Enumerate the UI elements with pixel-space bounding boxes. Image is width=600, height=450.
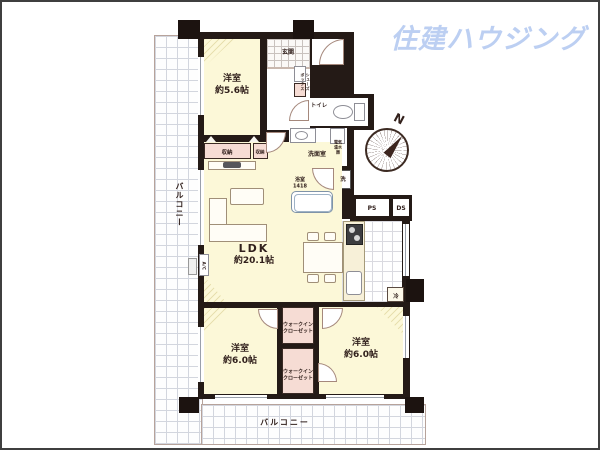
- bedroom2-label: 洋室 約6.0帖: [205, 344, 275, 367]
- kitchen-sink: [346, 271, 362, 295]
- water-heater-label: 電気温水器: [324, 140, 352, 156]
- balcony-left-label: バルコニー: [172, 174, 184, 234]
- dining-chair: [307, 232, 319, 241]
- closet-door-mark: [206, 136, 216, 142]
- floorplan-image: 洋室 約5.6帖 玄関 シューズボックス トイレ 洗面室 電気温水器 浴室 14…: [0, 0, 600, 450]
- stove-burner: [349, 227, 355, 233]
- balcony-left: [154, 35, 203, 445]
- pillar: [405, 397, 424, 413]
- wic1-label: ウォークイン クローゼット: [281, 322, 316, 335]
- tv: [223, 162, 241, 168]
- dining-table: [303, 242, 343, 273]
- dining-chair: [307, 274, 319, 283]
- dining-chair: [324, 274, 336, 283]
- washer-label: 洗: [324, 176, 363, 183]
- window: [198, 327, 204, 382]
- fridge-label: 冷: [377, 293, 416, 300]
- toilet-tank: [354, 103, 365, 121]
- window: [326, 395, 384, 400]
- dining-chair: [324, 232, 336, 241]
- pillar: [179, 397, 199, 413]
- coffee-table: [230, 188, 264, 205]
- shoe-box-label: シューズボックス: [305, 73, 310, 91]
- window: [403, 316, 409, 358]
- bedroom3-label: 洋室 約6.0帖: [326, 338, 396, 361]
- bathroom-label: 浴室 1418: [283, 177, 318, 190]
- balcony-bottom-label: バルコニー: [250, 418, 320, 428]
- ac-outdoor-unit: [188, 258, 197, 275]
- room-size: 約5.6帖: [197, 86, 267, 98]
- wic2-label: ウォークイン クローゼット: [281, 369, 316, 382]
- window: [403, 224, 409, 276]
- storage1-label: 収納: [208, 149, 247, 156]
- pillar: [178, 20, 200, 39]
- pillar: [293, 20, 314, 39]
- room-name: 洋室: [197, 74, 267, 86]
- entrance-label: 玄関: [267, 49, 309, 57]
- window: [215, 395, 267, 400]
- ac-label: A/C: [202, 262, 206, 271]
- ds-label: DS: [380, 205, 422, 213]
- stove-burner: [354, 235, 360, 241]
- window: [198, 170, 204, 245]
- toilet-label: トイレ: [300, 102, 339, 109]
- bedroom1-label: 洋室 約5.6帖: [197, 74, 267, 97]
- storage2-label: 収納: [244, 150, 276, 156]
- vanity-sink: [295, 131, 308, 140]
- compass-north-label: N: [391, 110, 406, 127]
- sofa: [209, 224, 267, 242]
- ldk-label: LDK 約20.1帖: [219, 242, 289, 268]
- bathtub-inner: [294, 194, 332, 212]
- closet-door-mark: [249, 136, 259, 142]
- company-logo: 住建ハウジング: [390, 17, 590, 56]
